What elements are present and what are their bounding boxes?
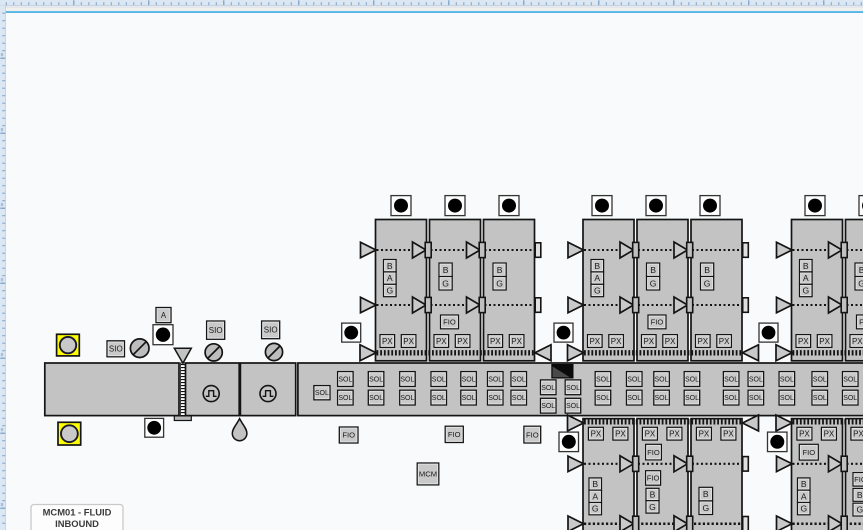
svg-text:SOL: SOL <box>400 395 414 402</box>
svg-text:PX: PX <box>799 430 810 439</box>
svg-text:PX: PX <box>719 337 730 346</box>
svg-text:B: B <box>594 261 600 271</box>
svg-text:PX: PX <box>615 430 626 439</box>
svg-text:A: A <box>387 273 393 283</box>
svg-text:G: G <box>594 286 601 296</box>
svg-text:PX: PX <box>669 430 680 439</box>
svg-text:FIO: FIO <box>859 318 863 327</box>
svg-text:PX: PX <box>457 337 468 346</box>
svg-text:SOL: SOL <box>685 377 699 384</box>
svg-text:PX: PX <box>490 337 501 346</box>
svg-text:SIO: SIO <box>109 345 123 354</box>
svg-text:SOL: SOL <box>400 377 414 384</box>
svg-text:G: G <box>496 278 503 288</box>
svg-text:PX: PX <box>591 430 602 439</box>
svg-text:PX: PX <box>643 337 654 346</box>
svg-text:A: A <box>592 491 598 501</box>
svg-text:SOL: SOL <box>813 377 827 384</box>
svg-text:SOL: SOL <box>338 395 352 402</box>
svg-text:FIO: FIO <box>647 474 660 483</box>
svg-text:SOL: SOL <box>369 377 383 384</box>
svg-text:PX: PX <box>611 337 622 346</box>
svg-text:G: G <box>802 286 809 296</box>
svg-text:SOL: SOL <box>432 377 446 384</box>
svg-text:SOL: SOL <box>541 403 555 410</box>
svg-text:SOL: SOL <box>488 377 502 384</box>
svg-text:SOL: SOL <box>462 395 476 402</box>
svg-text:FIO: FIO <box>448 430 461 439</box>
svg-text:PX: PX <box>723 430 734 439</box>
svg-text:A: A <box>801 491 807 501</box>
svg-text:SOL: SOL <box>724 395 738 402</box>
svg-text:MCM01 - FLUID: MCM01 - FLUID <box>43 507 112 518</box>
svg-text:SOL: SOL <box>462 377 476 384</box>
svg-text:FIO: FIO <box>854 475 863 484</box>
svg-text:FIO: FIO <box>651 318 664 327</box>
svg-text:A: A <box>594 273 600 283</box>
svg-text:SOL: SOL <box>843 395 857 402</box>
svg-text:PX: PX <box>798 337 809 346</box>
svg-text:SOL: SOL <box>541 385 555 392</box>
svg-text:SOL: SOL <box>724 377 738 384</box>
svg-text:B: B <box>650 265 656 275</box>
svg-text:SOL: SOL <box>749 395 763 402</box>
svg-text:SOL: SOL <box>654 395 668 402</box>
svg-text:PX: PX <box>699 430 710 439</box>
svg-text:FIO: FIO <box>647 448 660 457</box>
svg-text:B: B <box>801 479 807 489</box>
svg-text:PX: PX <box>382 337 393 346</box>
svg-text:B: B <box>650 490 656 500</box>
svg-text:SOL: SOL <box>369 395 383 402</box>
svg-text:SOL: SOL <box>338 377 352 384</box>
svg-text:SOL: SOL <box>654 377 668 384</box>
svg-text:FIO: FIO <box>443 318 456 327</box>
svg-text:SOL: SOL <box>780 377 794 384</box>
svg-text:SOL: SOL <box>596 377 610 384</box>
svg-text:G: G <box>592 504 599 514</box>
svg-text:SOL: SOL <box>432 395 446 402</box>
svg-text:B: B <box>703 489 709 499</box>
svg-text:B: B <box>497 265 503 275</box>
svg-text:SIO: SIO <box>264 326 278 335</box>
svg-text:B: B <box>859 265 863 275</box>
svg-text:FIO: FIO <box>342 431 355 440</box>
svg-text:SOL: SOL <box>627 395 641 402</box>
svg-text:G: G <box>800 504 807 514</box>
svg-text:MCM: MCM <box>419 470 437 479</box>
svg-text:B: B <box>387 261 393 271</box>
svg-text:G: G <box>856 505 863 515</box>
svg-text:PX: PX <box>403 337 414 346</box>
svg-text:B: B <box>704 265 710 275</box>
svg-text:SOL: SOL <box>512 377 526 384</box>
svg-text:B: B <box>803 261 809 271</box>
svg-text:SOL: SOL <box>749 377 763 384</box>
svg-text:SOL: SOL <box>780 395 794 402</box>
svg-text:SOL: SOL <box>488 395 502 402</box>
svg-text:SOL: SOL <box>813 395 827 402</box>
svg-text:SOL: SOL <box>512 395 526 402</box>
svg-text:SOL: SOL <box>596 395 610 402</box>
svg-text:B: B <box>857 490 863 500</box>
svg-text:SOL: SOL <box>627 377 641 384</box>
svg-text:A: A <box>161 311 167 320</box>
svg-text:A: A <box>803 273 809 283</box>
svg-text:PX: PX <box>645 430 656 439</box>
svg-text:SOL: SOL <box>843 377 857 384</box>
svg-text:FIO: FIO <box>526 430 539 439</box>
svg-text:PX: PX <box>853 430 863 439</box>
svg-text:INBOUND: INBOUND <box>55 518 99 529</box>
svg-text:G: G <box>649 502 656 512</box>
svg-text:SOL: SOL <box>685 395 699 402</box>
svg-text:G: G <box>650 278 657 288</box>
svg-text:PX: PX <box>697 337 708 346</box>
svg-text:G: G <box>702 503 709 513</box>
svg-text:G: G <box>386 286 393 296</box>
svg-text:PX: PX <box>819 337 830 346</box>
svg-text:B: B <box>443 265 449 275</box>
svg-text:SOL: SOL <box>315 390 329 397</box>
svg-text:PX: PX <box>824 430 835 439</box>
svg-text:SOL: SOL <box>566 385 580 392</box>
svg-text:PX: PX <box>665 337 676 346</box>
svg-text:SIO: SIO <box>209 326 223 335</box>
svg-text:B: B <box>592 479 598 489</box>
svg-text:PX: PX <box>589 337 600 346</box>
svg-text:FIO: FIO <box>802 448 815 457</box>
svg-text:PX: PX <box>511 337 522 346</box>
svg-text:PX: PX <box>852 337 863 346</box>
svg-text:PX: PX <box>436 337 447 346</box>
svg-text:G: G <box>858 278 863 288</box>
svg-text:G: G <box>704 278 711 288</box>
svg-text:SOL: SOL <box>566 403 580 410</box>
svg-text:G: G <box>442 278 449 288</box>
